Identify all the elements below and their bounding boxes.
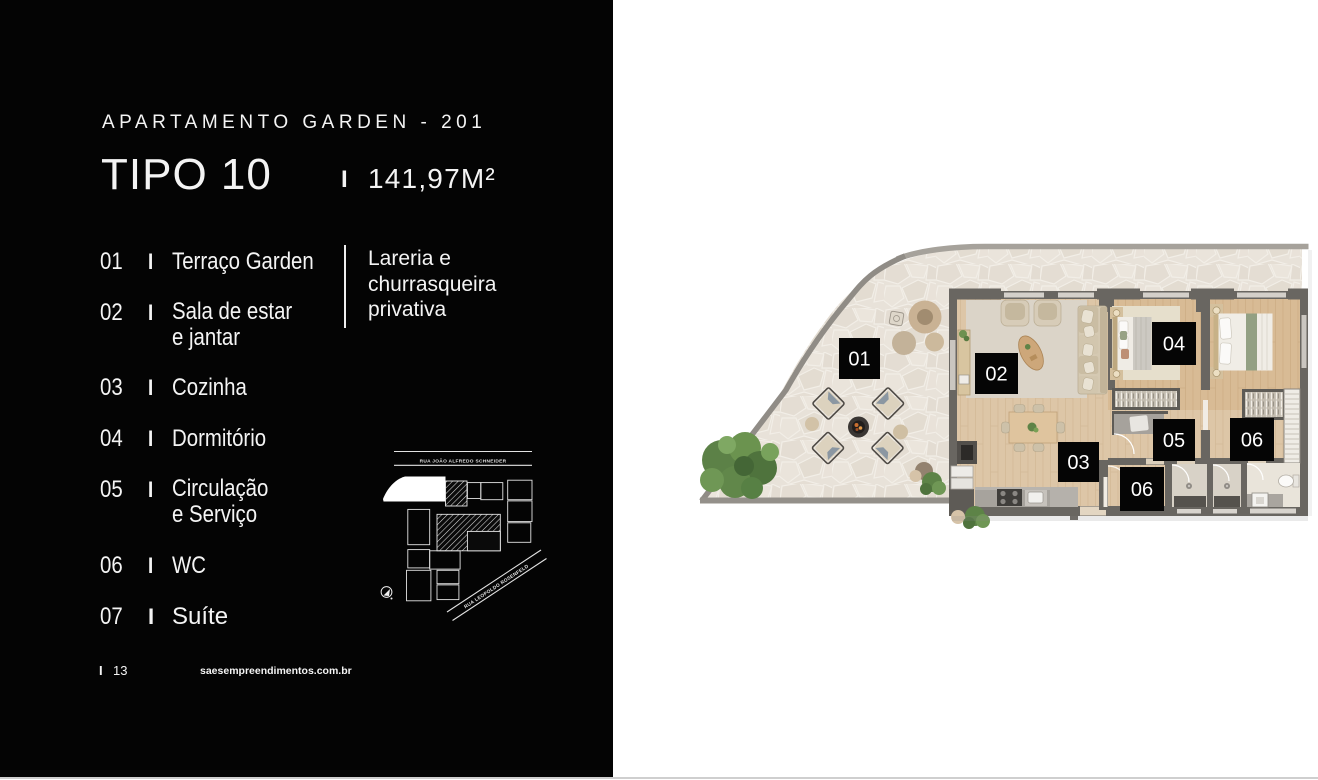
svg-text:03: 03: [1067, 452, 1089, 474]
svg-text:06: 06: [1241, 430, 1263, 452]
svg-text:02: 02: [985, 364, 1007, 386]
svg-text:RUA LEOPOLDO ROSENFELD: RUA LEOPOLDO ROSENFELD: [463, 563, 530, 610]
svg-text:04: 04: [1163, 334, 1185, 356]
svg-text:RUA JOÃO ALFREDO SCHNEIDER: RUA JOÃO ALFREDO SCHNEIDER: [420, 458, 507, 465]
svg-text:05: 05: [1163, 430, 1185, 452]
svg-text:06: 06: [1131, 479, 1153, 501]
svg-text:01: 01: [848, 349, 870, 371]
